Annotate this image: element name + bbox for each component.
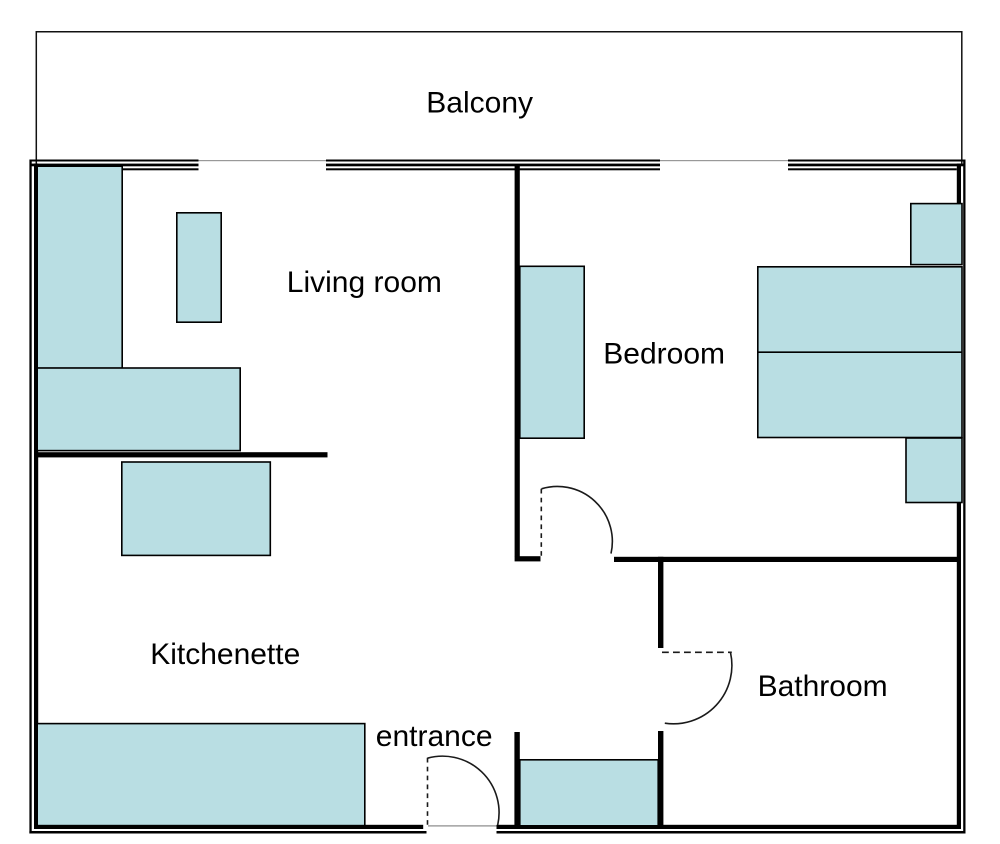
svg-text:Bathroom: Bathroom bbox=[758, 670, 888, 703]
svg-text:Bedroom: Bedroom bbox=[603, 337, 725, 370]
svg-text:Kitchenette: Kitchenette bbox=[150, 638, 300, 671]
svg-text:entrance: entrance bbox=[376, 720, 493, 753]
svg-text:Living room: Living room bbox=[287, 266, 442, 299]
svg-text:Balcony: Balcony bbox=[426, 87, 533, 120]
